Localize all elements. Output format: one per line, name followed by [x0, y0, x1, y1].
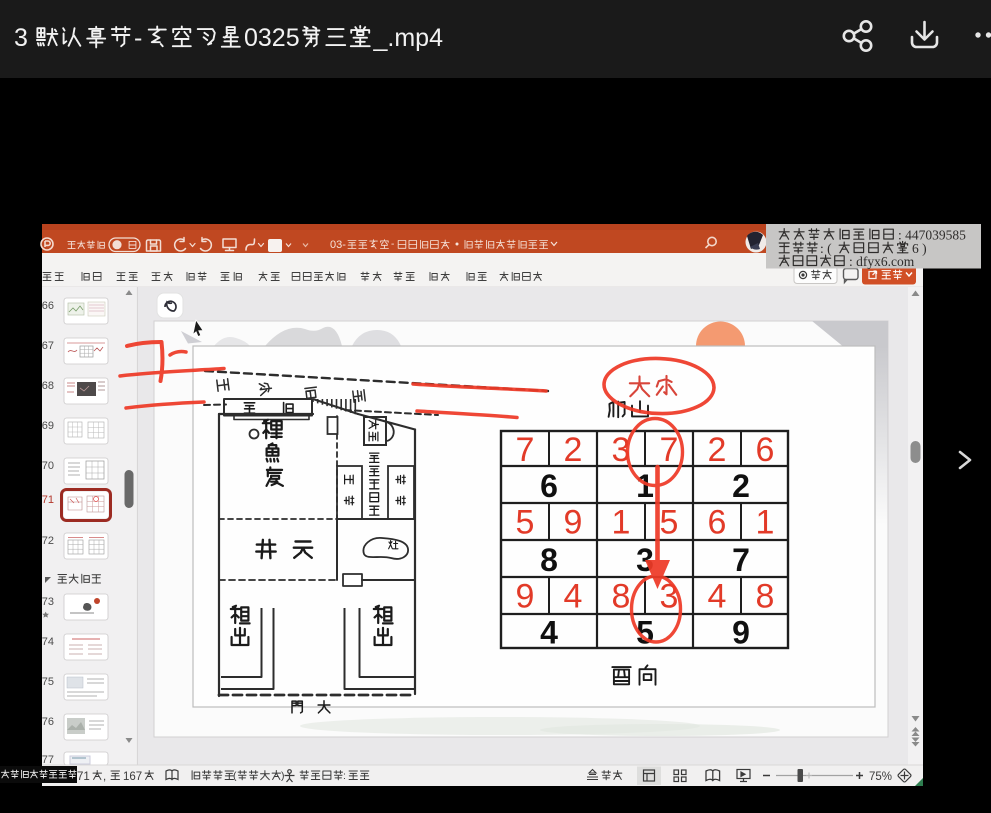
svg-text:77: 77 [42, 754, 54, 766]
svg-text:76: 76 [42, 716, 54, 728]
svg-text:5: 5 [660, 504, 679, 542]
svg-text:167: 167 [123, 771, 142, 783]
svg-text:: 447039585: : 447039585 [898, 228, 966, 243]
svg-text:71: 71 [77, 771, 90, 783]
svg-text:7: 7 [516, 431, 535, 469]
svg-text:9: 9 [564, 504, 583, 542]
svg-text:6: 6 [756, 431, 775, 469]
svg-text:: dfyx6.com: : dfyx6.com [849, 254, 915, 269]
svg-text:7: 7 [660, 431, 679, 469]
svg-text:5: 5 [516, 504, 535, 542]
svg-text:75: 75 [42, 676, 54, 688]
svg-text:-: - [391, 239, 394, 250]
svg-text:_.mp4: _.mp4 [373, 24, 444, 52]
svg-text:67: 67 [42, 340, 54, 352]
svg-text:7: 7 [732, 542, 750, 578]
svg-text::: : [343, 770, 346, 782]
svg-text:70: 70 [42, 460, 54, 472]
svg-text:4: 4 [564, 578, 583, 616]
svg-text:74: 74 [42, 636, 54, 648]
svg-text:6: 6 [708, 504, 727, 542]
svg-text:1: 1 [756, 504, 775, 542]
svg-text:1: 1 [612, 504, 631, 542]
svg-text:75%: 75% [869, 771, 892, 783]
svg-text:2: 2 [732, 468, 750, 504]
svg-text:4: 4 [540, 615, 558, 651]
svg-text:): ) [281, 770, 285, 782]
svg-text:71: 71 [42, 494, 54, 506]
svg-text:72: 72 [42, 535, 54, 547]
svg-text:03-: 03- [330, 239, 346, 251]
svg-text:66: 66 [42, 300, 54, 312]
svg-text:,: , [103, 771, 106, 783]
svg-text:8: 8 [612, 578, 631, 616]
svg-text:68: 68 [42, 380, 54, 392]
svg-text:6: 6 [540, 468, 558, 504]
svg-text:8: 8 [756, 578, 775, 616]
svg-text:0325: 0325 [244, 24, 300, 52]
svg-text:: (: : ( [820, 241, 832, 256]
svg-text:4: 4 [708, 578, 727, 616]
svg-text:2: 2 [708, 431, 727, 469]
svg-text:73: 73 [42, 596, 54, 608]
svg-text:9: 9 [516, 578, 535, 616]
svg-text:-: - [134, 24, 142, 52]
svg-text:(: ( [233, 770, 237, 782]
svg-text:2: 2 [564, 431, 583, 469]
svg-text:69: 69 [42, 420, 54, 432]
svg-text:9: 9 [732, 615, 750, 651]
svg-text:8: 8 [540, 542, 558, 578]
svg-text:3: 3 [14, 24, 28, 52]
